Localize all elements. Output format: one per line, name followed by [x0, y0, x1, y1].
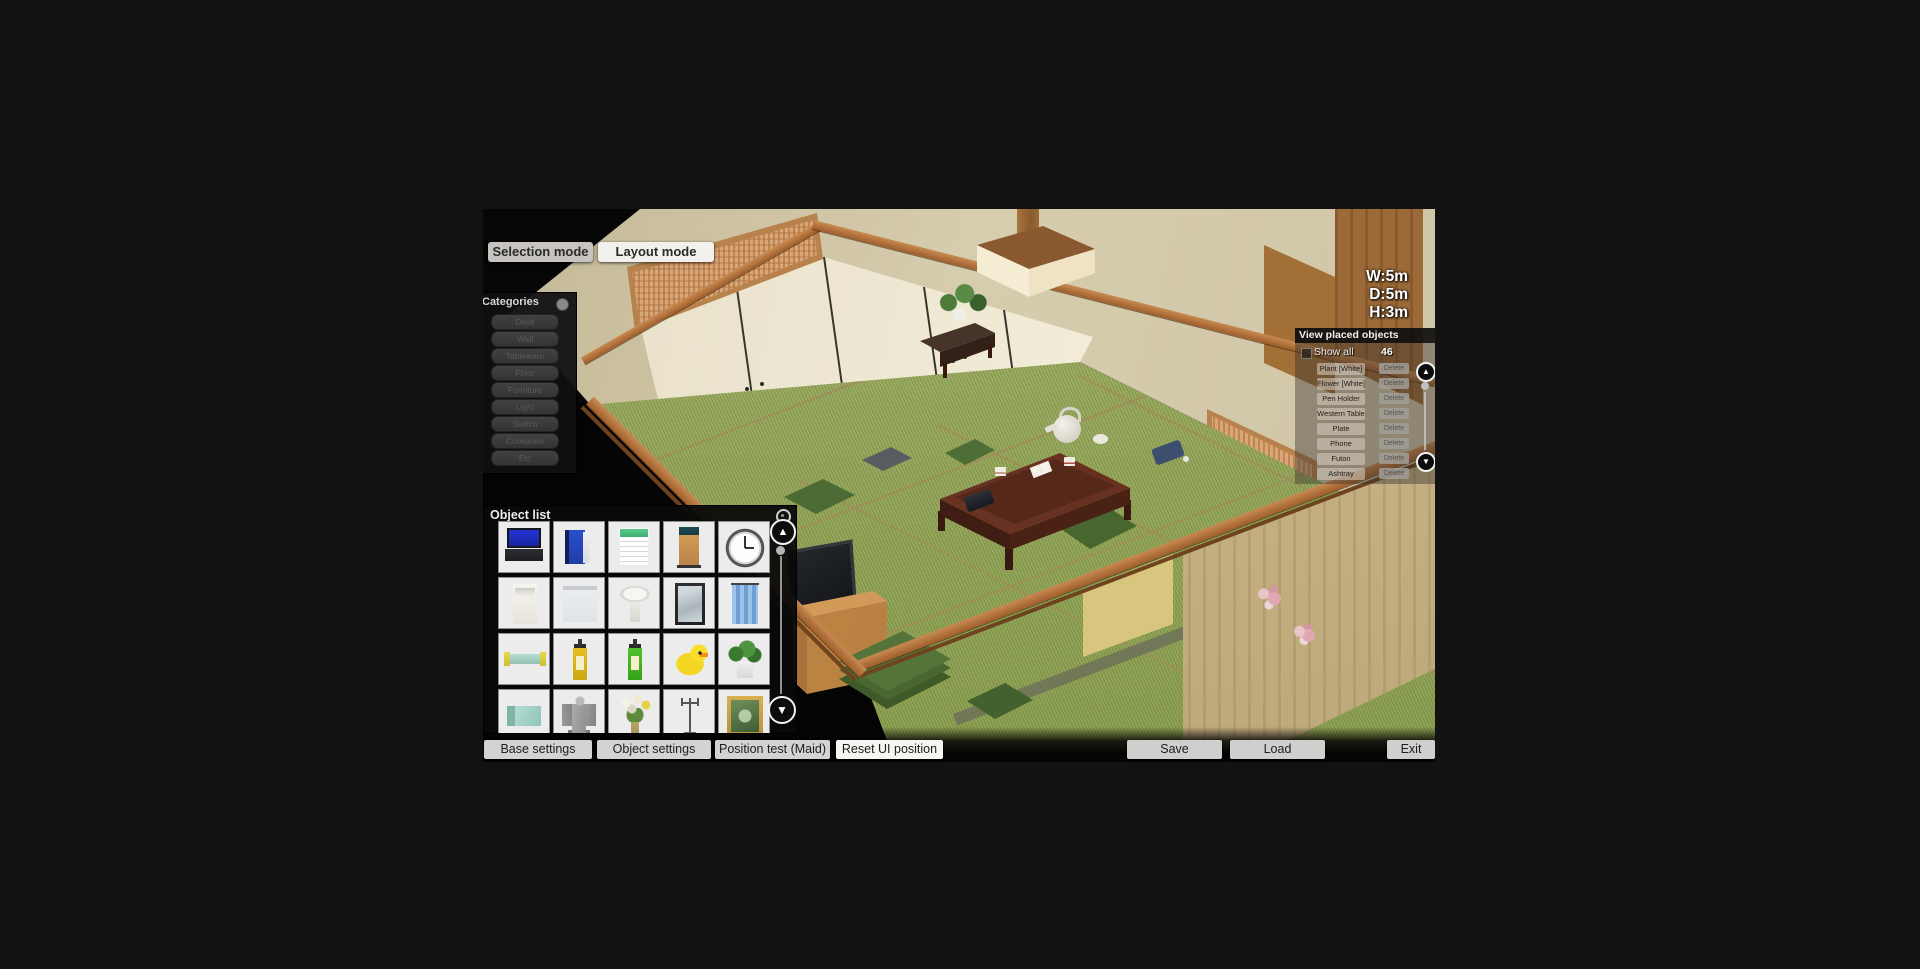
object-thumb[interactable]: [553, 577, 605, 629]
categories-pin-icon[interactable]: [556, 298, 569, 311]
save-button[interactable]: Save: [1127, 740, 1222, 759]
tea-kettle: [1053, 415, 1081, 443]
object-thumb[interactable]: [663, 577, 715, 629]
shelf-leg: [943, 364, 947, 378]
categories-panel: Categories Desk Wall Tableware Floor Fur…: [483, 292, 577, 474]
category-button[interactable]: Floor: [491, 365, 559, 381]
placed-row-name[interactable]: Phone: [1317, 438, 1365, 450]
object-thumb[interactable]: [553, 633, 605, 685]
category-button[interactable]: Light: [491, 399, 559, 415]
placed-row-delete-button[interactable]: Delete: [1379, 363, 1409, 374]
category-button[interactable]: Tableware: [491, 348, 559, 364]
object-thumb[interactable]: [498, 689, 550, 734]
scrollbar-track[interactable]: [780, 556, 782, 694]
layout-mode-button[interactable]: Layout mode: [598, 242, 714, 262]
placed-row-name[interactable]: Pen Holder: [1317, 393, 1365, 405]
room-dimensions: W:5m D:5m H:3m: [1338, 268, 1408, 322]
flower-print: [1289, 621, 1319, 647]
position-test-button[interactable]: Position test (Maid): [715, 740, 830, 759]
object-thumb[interactable]: [498, 577, 550, 629]
table-leg: [1005, 546, 1013, 570]
category-button[interactable]: Desk: [491, 314, 559, 330]
selection-mode-button[interactable]: Selection mode: [488, 242, 593, 262]
base-settings-button[interactable]: Base settings: [484, 740, 592, 759]
screen: Selection mode Layout mode W:5m D:5m H:3…: [0, 0, 1920, 969]
placed-row-name[interactable]: Western Table: [1317, 408, 1365, 420]
placed-row-delete-button[interactable]: Delete: [1379, 378, 1409, 389]
load-button[interactable]: Load: [1230, 740, 1325, 759]
door-handle: [760, 382, 764, 386]
scrollbar-knob[interactable]: [776, 546, 785, 555]
placed-row-name[interactable]: Ashtray: [1317, 468, 1365, 480]
potted-plant: [935, 281, 989, 317]
tea-cup: [1064, 457, 1075, 466]
tea-cup: [995, 467, 1006, 476]
object-list-title: Object list: [490, 508, 550, 522]
scroll-up-icon[interactable]: ▲: [1416, 362, 1435, 382]
object-thumb[interactable]: [663, 689, 715, 734]
object-thumb[interactable]: [553, 689, 605, 734]
placed-count: 46: [1381, 346, 1393, 358]
categories-title: Categories: [483, 296, 539, 308]
placed-objects-panel: View placed objects Show all 46 Plant [W…: [1295, 328, 1435, 484]
flower-print: [1251, 581, 1287, 613]
object-thumb[interactable]: [718, 689, 770, 734]
object-thumb[interactable]: [498, 633, 550, 685]
object-thumb[interactable]: [608, 689, 660, 734]
placed-row-name[interactable]: Plate: [1317, 423, 1365, 435]
object-settings-button[interactable]: Object settings: [597, 740, 711, 759]
scrollbar-knob[interactable]: [1421, 382, 1429, 390]
scroll-up-icon[interactable]: ▲: [770, 519, 796, 545]
placed-row-delete-button[interactable]: Delete: [1379, 468, 1409, 479]
room-width: W:5m: [1338, 268, 1408, 286]
game-window: Selection mode Layout mode W:5m D:5m H:3…: [483, 209, 1435, 762]
scroll-down-icon[interactable]: ▼: [1416, 452, 1435, 472]
scroll-down-icon[interactable]: ▼: [768, 696, 796, 724]
reset-ui-position-button[interactable]: Reset UI position: [836, 740, 943, 759]
placed-row-delete-button[interactable]: Delete: [1379, 438, 1409, 449]
object-thumb[interactable]: [663, 633, 715, 685]
object-thumb[interactable]: [553, 521, 605, 573]
object-thumb[interactable]: [663, 521, 715, 573]
placed-row-delete-button[interactable]: Delete: [1379, 453, 1409, 464]
shelf-leg: [988, 344, 992, 358]
placed-row-delete-button[interactable]: Delete: [1379, 393, 1409, 404]
exit-button[interactable]: Exit: [1387, 740, 1435, 759]
placed-row-delete-button[interactable]: Delete: [1379, 423, 1409, 434]
floor-cup: [1093, 434, 1108, 444]
placed-objects-title: View placed objects: [1295, 328, 1435, 343]
show-all-checkbox[interactable]: [1301, 348, 1312, 359]
scrollbar-track[interactable]: [1424, 392, 1426, 450]
category-button[interactable]: Switch: [491, 416, 559, 432]
object-thumb[interactable]: [608, 577, 660, 629]
category-button[interactable]: Cookware: [491, 433, 559, 449]
small-cup: [1183, 456, 1189, 462]
object-thumb[interactable]: [498, 521, 550, 573]
room-height: H:3m: [1338, 304, 1408, 322]
room-depth: D:5m: [1338, 286, 1408, 304]
show-all-label: Show all: [1314, 346, 1354, 358]
placed-row-delete-button[interactable]: Delete: [1379, 408, 1409, 419]
category-button[interactable]: Etc: [491, 450, 559, 466]
category-button[interactable]: Wall: [491, 331, 559, 347]
placed-row-name[interactable]: Futon: [1317, 453, 1365, 465]
category-button[interactable]: Furniture: [491, 382, 559, 398]
object-list-panel: Object list ▲ ▼: [483, 505, 797, 734]
object-thumb[interactable]: [608, 521, 660, 573]
door-handle: [745, 387, 749, 391]
object-thumb[interactable]: [718, 521, 770, 573]
object-thumb[interactable]: [608, 633, 660, 685]
object-thumb[interactable]: [718, 577, 770, 629]
object-thumb[interactable]: [718, 633, 770, 685]
placed-row-name[interactable]: Plant [White]: [1317, 363, 1365, 375]
placed-row-name[interactable]: Flower [White]: [1317, 378, 1365, 390]
